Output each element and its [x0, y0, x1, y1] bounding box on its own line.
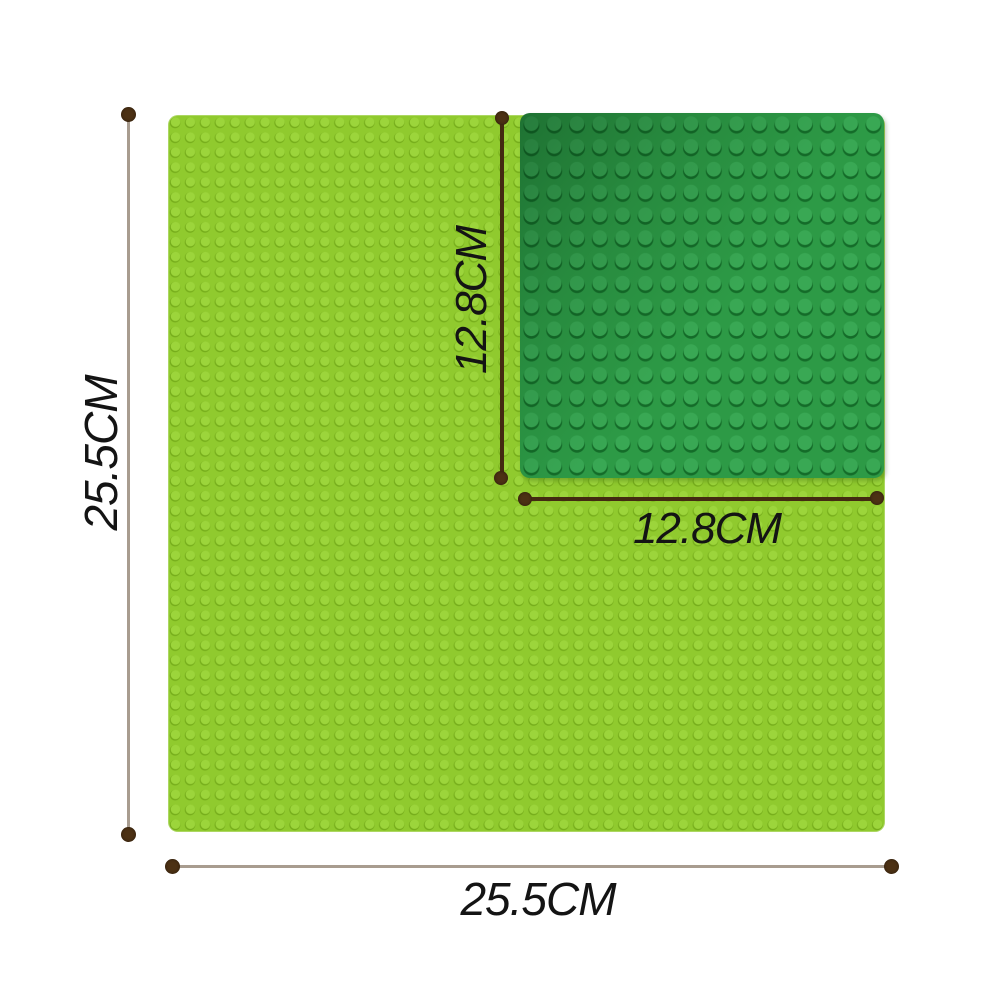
large-plate-width-dimension-line: [172, 865, 891, 868]
small-plate-width-label: 12.8CM: [597, 501, 817, 557]
dimension-endpoint-dot: [495, 111, 509, 125]
dimension-endpoint-dot: [494, 471, 508, 485]
dimension-endpoint-dot: [165, 859, 180, 874]
small-baseplate: [520, 113, 884, 478]
dimension-endpoint-dot: [121, 827, 136, 842]
dimension-endpoint-dot: [870, 491, 884, 505]
dimension-endpoint-dot: [121, 107, 136, 122]
product-image-canvas: 25.5CM 25.5CM 12.8CM 12.8CM: [0, 0, 1000, 1000]
large-plate-width-label: 25.5CM: [428, 871, 648, 927]
small-plate-height-label: 12.8CM: [444, 190, 500, 410]
dimension-endpoint-dot: [884, 859, 899, 874]
small-plate-height-dimension-line: [500, 118, 504, 478]
small-plate-width-dimension-line: [525, 497, 877, 501]
dimension-endpoint-dot: [518, 492, 532, 506]
large-plate-height-label: 25.5CM: [73, 343, 129, 563]
